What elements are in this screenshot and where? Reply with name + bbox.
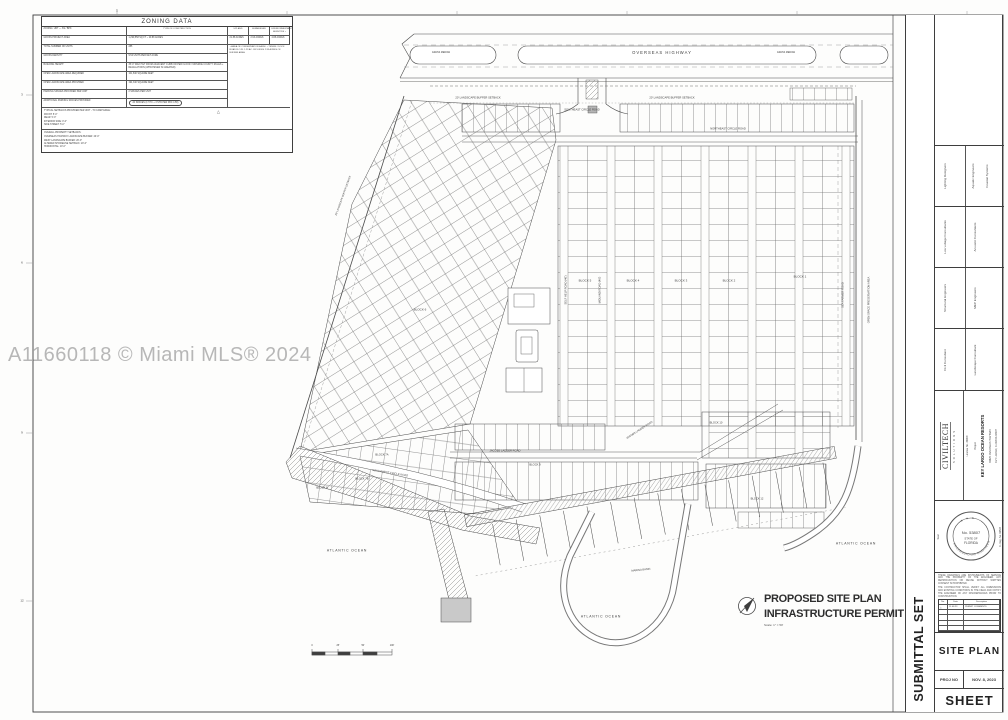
zoning-side-note: + AREA OF CONSERVATION EASM. + TENNIS / … (228, 45, 290, 108)
zoning-cell: 21.88 ACRES (228, 36, 249, 45)
plan-label: 1 (116, 10, 118, 13)
plan-label: 0 (311, 645, 312, 647)
firm-logo: CIVILTECH (940, 422, 951, 470)
project-address-2: KEY LARGO, FLORIDA 33037 (995, 428, 998, 462)
plan-label: 100' (390, 645, 394, 647)
title-block: SUBMITTAL SET Lighting Designers Aquatic… (905, 15, 1003, 712)
consultant-label: Structural Engineers (943, 284, 947, 312)
zoning-cell: 285 (127, 45, 228, 54)
consultant-label: MEP Engineers (973, 287, 977, 308)
submittal-set-strip: SUBMITTAL SET (909, 589, 931, 709)
zoning-note-title: OVERALL PROPERTY SETBACKS: (44, 132, 290, 135)
zoning-cell: OPEN LANDSCAPE AREA REQUIRED (42, 72, 127, 81)
plan-label: BLOCK 7B (355, 479, 368, 482)
zoning-cell: 194,340 SQUARE FEET (127, 81, 228, 90)
plan-label: JACOBS LADDER ROAD (626, 421, 653, 440)
zoning-cell: UPLAND (228, 27, 249, 36)
plan-label: 6 (21, 262, 23, 265)
plan-label: GRASS MEDIAN (432, 52, 450, 54)
zoning-cell: ADDITIONAL PARKING SPACES PROVIDED (42, 99, 127, 108)
plan-label: ATLANTIC OCEAN (327, 549, 367, 552)
zoning-cell: SUBMERGED (249, 27, 270, 36)
sheet-label: SHEET (945, 693, 993, 708)
zoning-note-title: TYPICAL SETBACKS PROVIDED PER UNIT - TO … (44, 110, 290, 113)
drawing-sheet: OVERSEAS HIGHWAYGRASS MEDIANGRASS MEDIAN… (0, 0, 1008, 720)
plan-label: 12 (20, 600, 23, 603)
zoning-cell: 20 SPACES (17 HC + 3 STD PER FBC 4.58) (127, 99, 228, 108)
revision-triangle-icon: △ (217, 109, 220, 115)
zoning-cell: OPEN LANDSCAPE AREA PROVIDED (42, 81, 127, 90)
consultant-cell: Structural Engineers MEP Engineers (935, 267, 1004, 328)
sheet-date: NOV. 8, 2023 (964, 671, 1004, 688)
plan-label: BLOCK 1 (794, 276, 807, 279)
consultant-label: Landscape Consultant (973, 344, 977, 375)
zoning-cell: 2.93 ACRES (249, 36, 270, 45)
zoning-cell: GROSS PROJECT AREA (42, 36, 127, 45)
zoning-cell: TOTAL NUMBER OF UNITS (42, 45, 127, 54)
zoning-cell: GROSS DENSITY (42, 54, 127, 63)
plan-label: BLOCK 4 (627, 280, 640, 283)
plan-label: SELF HELP ROAD (40') (566, 276, 569, 305)
disclaimer-revision-cell: THESE DRAWINGS ARE INSTRUMENTS OF SERVIC… (935, 572, 1004, 632)
revision-cell (939, 626, 948, 631)
plan-label: SOUTHWEST CIRCLE ROAD (372, 470, 408, 478)
zoning-cell: PARKING SPACES PROVIDED PER UNIT (42, 90, 127, 99)
zoning-cell: BUILDING HEIGHT (42, 63, 127, 72)
zoning-note-line: HORIZONTAL: 10'-0" (44, 146, 290, 149)
pe-registration-note: FL Reg. No. 66507 (999, 526, 1002, 546)
plan-label: BLOCK 3 (675, 280, 688, 283)
consultant-label: Civil Consultant (943, 349, 947, 371)
plan-label: BLOCK 6 (414, 309, 427, 312)
plan-label: OVERSEAS HIGHWAY (632, 51, 692, 55)
zoning-cell: 101,840 SQUARE FEET (127, 72, 228, 81)
plan-label: 25' (336, 645, 339, 647)
plan-label: NORTHEAST CIRCLE ROAD (710, 129, 746, 132)
zoning-cell: 1,299,558 SQ FT ~ 29.88 ACRES (127, 36, 228, 45)
plan-label: 20' LANDSCAPE BUFFER SETBACK (649, 98, 694, 101)
plan-label: ATLANTIC OCEAN (581, 615, 621, 618)
plan-label: MARINA BASIN (631, 569, 650, 574)
svg-text:STATE OF: STATE OF (964, 537, 978, 541)
consultant-label: Coastal Systems (985, 164, 989, 187)
zoning-notes-setbacks: △ TYPICAL SETBACKS PROVIDED PER UNIT - T… (42, 108, 292, 130)
zoning-cell: 35'-0" MAX HGT FROM ADJACENT CURB OR PER… (127, 63, 228, 72)
sheet-title: SITE PLAN (939, 646, 1000, 657)
plan-label: 3 (21, 94, 23, 97)
revision-cell (948, 626, 964, 631)
project-name: KEY LARGO OCEAN RESORTS (980, 414, 985, 477)
zoning-cell: 4.88 ACRES (270, 36, 290, 45)
revision-cloud: 20 SPACES (17 HC + 3 STD PER FBC 4.58) (129, 100, 183, 106)
sheet-number-cell: SHEET (935, 688, 1004, 712)
license-number: License No. 34809 (966, 435, 969, 456)
plan-label: BLOCK 2 (723, 280, 736, 283)
plan-label: 50' (361, 645, 364, 647)
seal-cell: Seal ★ ★ ★ PROFESSIONAL ENGINEER No. 538… (935, 500, 1004, 572)
firm-logo-sub: SOLUTIONS (952, 428, 956, 462)
consultant-label: Aquatic Engineers (971, 163, 975, 188)
zoning-cell: 2 SPACES PER UNIT (127, 90, 228, 99)
disclaimer-text: THE CONTRACTOR SHALL VERIFY ALL DIMENSIO… (938, 587, 1001, 598)
consultant-label: Acoustic Consultants (973, 223, 977, 252)
consultant-cell: Civil Consultant Landscape Consultant (935, 328, 1004, 390)
plan-label: OPEN SPACE PRESERVATION AREA (869, 277, 872, 324)
zoning-cell: ENVIRONMENTALLY SENSITIVE + (270, 27, 290, 36)
plan-label: BLOCK 7A (375, 455, 388, 458)
plan-label: ATLANTIC OCEAN (836, 542, 876, 545)
plan-label: 20' LANDSCAPE BUFFER SETBACK (455, 98, 500, 101)
project-number-cell: PROJ NO NOV. 8, 2023 (935, 670, 1004, 688)
plan-label: JACOBS LADDER ROAD (490, 451, 521, 454)
plan-label: BLOCK 12 (751, 499, 764, 502)
plan-label: BLOCK 5 (579, 280, 592, 283)
submittal-set-label: SUBMITTAL SET (912, 596, 926, 701)
seal-label: Seal (937, 534, 940, 539)
plan-label: BLOCK 9 (529, 465, 540, 468)
project-address-1: 94825 OVERSEAS HIGHWAY (989, 429, 992, 463)
consultant-label: Lighting Designers (943, 163, 947, 189)
consultant-cell: Lighting Designers Aquatic Engineers Coa… (935, 145, 1004, 206)
revision-cell (964, 626, 1000, 631)
revision-table: No. Date Description △ 11.08.23 PERMIT C… (938, 599, 1001, 632)
title-block-column: Lighting Designers Aquatic Engineers Coa… (934, 15, 1004, 712)
sheet-title-cell: SITE PLAN (935, 632, 1004, 670)
plan-label: 9 (21, 432, 23, 435)
firm-project-cell: CIVILTECH SOLUTIONS License No. 34809 Pr… (935, 390, 1004, 500)
mls-watermark: A11660118 © Miami MLS® 2024 (8, 344, 312, 367)
svg-text:FLORIDA: FLORIDA (964, 541, 979, 545)
svg-text:★ ★ ★: ★ ★ ★ (960, 516, 976, 523)
zoning-cell: 9.54 UNITS PER NET ACRE (127, 54, 228, 63)
plan-label: MIDLAND ROAD (40') (600, 277, 603, 304)
zoning-data-table: ZONING DATA ZONING: URT — SS / BPK TYPE … (41, 16, 293, 153)
disclaimer-text: THESE DRAWINGS ARE INSTRUMENTS OF SERVIC… (938, 575, 1001, 586)
zoning-note-line: SIDE STREET: 5'-0" (44, 124, 290, 127)
plan-label: BLOCK 8 (316, 488, 327, 491)
consultant-label: Low voltage Consultants (943, 220, 947, 254)
plan-label: SEA FARMER ROAD (843, 282, 846, 308)
proj-no-label: PROJ NO (935, 671, 964, 688)
project-label: Project (974, 442, 977, 450)
plan-label: SOUTHEAST CIRCLE ROAD (564, 110, 600, 113)
zoning-title: ZONING DATA (42, 17, 292, 27)
zoning-notes-property: OVERALL PROPERTY SETBACKS: OVERSEAS HIGH… (42, 130, 292, 152)
consultant-cell: Low voltage Consultants Acoustic Consult… (935, 206, 1004, 267)
zoning-cell: ZONING: URT — SS / BPK (42, 27, 127, 36)
plan-label: BLOCK 10 (710, 423, 723, 426)
zoning-cell: TYPE OF CONSTRUCTION (127, 27, 228, 36)
svg-text:No. 53807: No. 53807 (962, 530, 981, 535)
plan-label: 20' LANDSCAPE BUFFER SETBACK (336, 176, 353, 216)
zoning-grid: ZONING: URT — SS / BPK TYPE OF CONSTRUCT… (42, 27, 292, 108)
plan-label: GRASS MEDIAN (777, 52, 795, 54)
pe-seal-stamp: ★ ★ ★ PROFESSIONAL ENGINEER No. 53807 ST… (945, 510, 997, 562)
